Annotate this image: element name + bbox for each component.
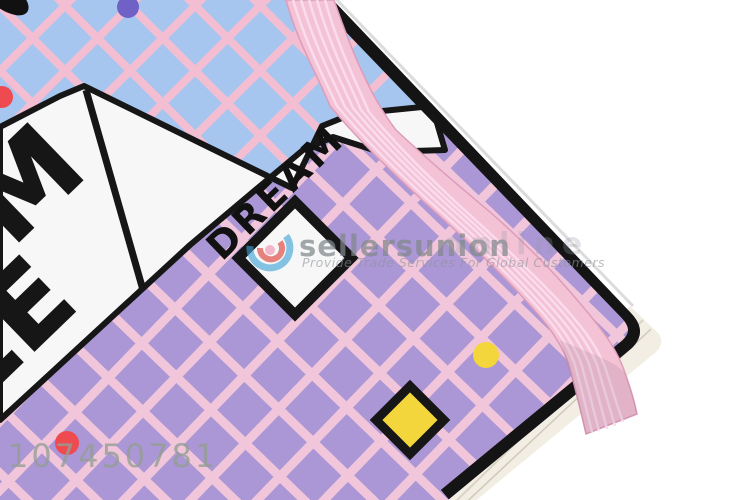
product-photo: M LE DREAM <box>0 0 750 500</box>
yellow-dot <box>473 342 499 368</box>
notebook-cover: M LE DREAM <box>0 0 750 500</box>
red-dot-bottom <box>55 431 79 455</box>
